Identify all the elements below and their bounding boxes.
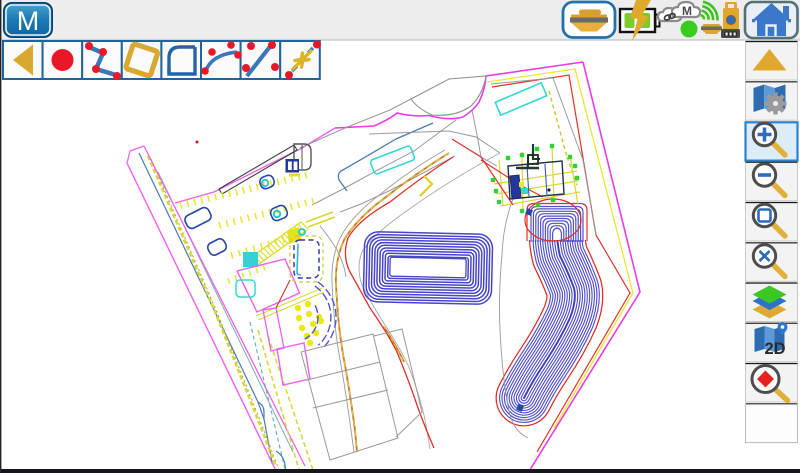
svg-text:M: M xyxy=(17,6,40,36)
svg-text:M: M xyxy=(682,4,692,18)
svg-text:2D: 2D xyxy=(764,340,785,358)
